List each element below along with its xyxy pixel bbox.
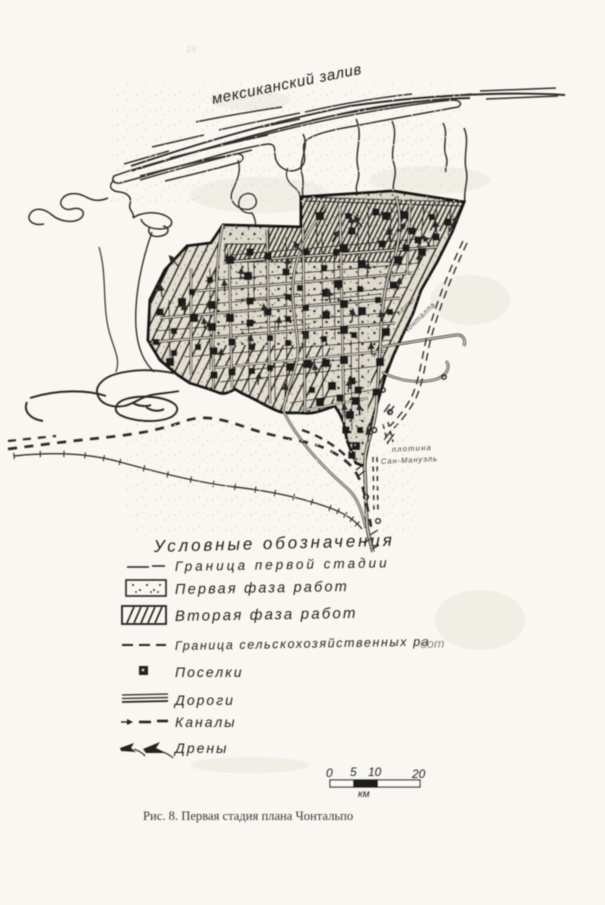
svg-text:Рис. 8. Первая стадия плана Чо: Рис. 8. Первая стадия плана Чонтальпо — [143, 809, 353, 823]
svg-text:Каналы: Каналы — [175, 714, 237, 730]
svg-text:км: км — [358, 789, 370, 800]
svg-text:бот: бот — [420, 637, 445, 651]
svg-text:Дрены: Дрены — [173, 740, 228, 756]
svg-text:10: 10 — [368, 765, 382, 779]
svg-text:5: 5 — [350, 765, 357, 779]
svg-text:20: 20 — [411, 767, 426, 781]
svg-text:19: 19 — [186, 44, 196, 54]
svg-text:Поселки: Поселки — [175, 664, 244, 680]
svg-text:Первая фаза работ: Первая фаза работ — [175, 579, 349, 598]
svg-text:Дороги: Дороги — [173, 692, 235, 708]
svg-text:Вторая фаза работ: Вторая фаза работ — [175, 605, 358, 625]
svg-text:0: 0 — [326, 766, 333, 780]
